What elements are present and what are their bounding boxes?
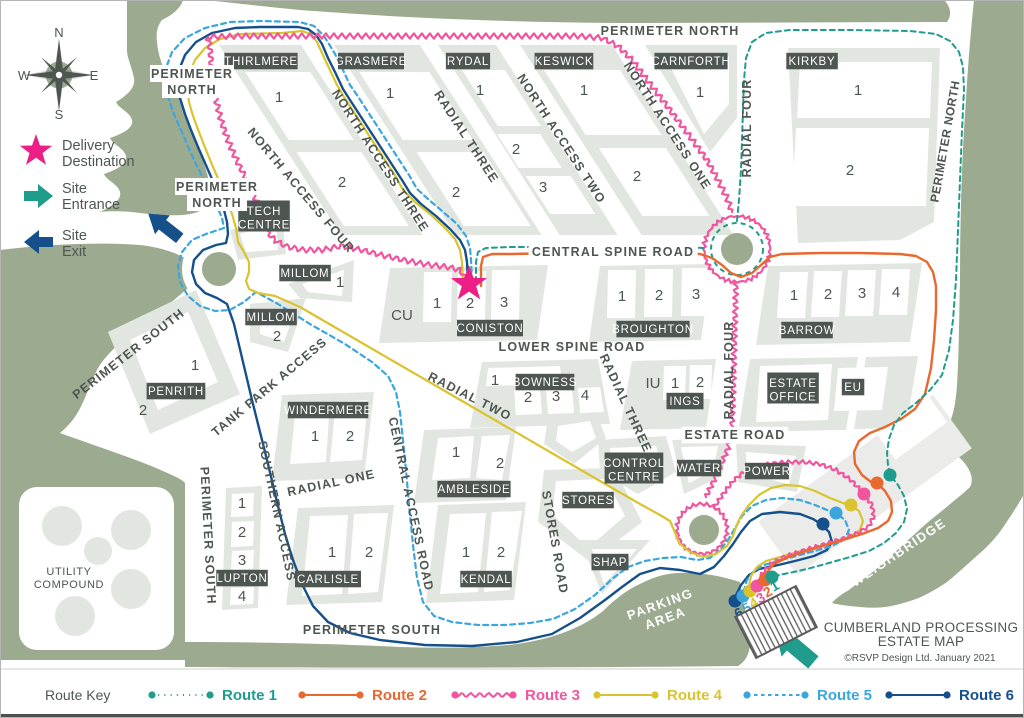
svg-text:2: 2 xyxy=(139,402,147,419)
svg-text:OFFICE: OFFICE xyxy=(770,392,817,404)
svg-text:NORTH: NORTH xyxy=(167,83,216,97)
svg-text:EU: EU xyxy=(844,382,862,394)
svg-text:3: 3 xyxy=(692,286,700,303)
svg-text:1: 1 xyxy=(491,372,499,389)
svg-text:4: 4 xyxy=(238,588,246,605)
svg-text:KESWICK: KESWICK xyxy=(535,56,594,68)
svg-text:2: 2 xyxy=(824,286,832,303)
svg-text:INGS: INGS xyxy=(669,396,700,408)
svg-text:RYDAL: RYDAL xyxy=(447,56,489,68)
svg-text:1: 1 xyxy=(580,82,588,99)
svg-text:2: 2 xyxy=(273,328,281,345)
svg-text:Route 2: Route 2 xyxy=(372,687,427,704)
svg-text:2: 2 xyxy=(346,428,354,445)
svg-text:ESTATE MAP: ESTATE MAP xyxy=(878,634,965,649)
svg-text:Exit: Exit xyxy=(62,244,86,260)
svg-text:PERIMETER: PERIMETER xyxy=(176,180,258,194)
svg-text:1: 1 xyxy=(336,274,344,291)
svg-text:3: 3 xyxy=(858,285,866,302)
svg-text:STORES: STORES xyxy=(562,495,614,507)
svg-text:PERIMETER: PERIMETER xyxy=(151,67,233,81)
svg-text:PERIMETER NORTH: PERIMETER NORTH xyxy=(601,24,740,38)
svg-text:2: 2 xyxy=(496,455,504,472)
svg-text:©RSVP Design Ltd. January 202: ©RSVP Design Ltd. January 2021 xyxy=(844,653,996,664)
svg-text:CARNFORTH: CARNFORTH xyxy=(651,56,730,68)
svg-text:1: 1 xyxy=(476,82,484,99)
svg-text:NORTH: NORTH xyxy=(192,196,241,210)
svg-text:1: 1 xyxy=(452,444,460,461)
svg-text:2: 2 xyxy=(497,544,505,561)
svg-text:IU: IU xyxy=(646,375,661,392)
svg-text:1: 1 xyxy=(238,495,246,512)
svg-text:1: 1 xyxy=(618,288,626,305)
svg-text:E: E xyxy=(90,68,99,83)
svg-text:1: 1 xyxy=(696,84,704,101)
svg-text:1: 1 xyxy=(386,85,394,102)
svg-text:ESTATE ROAD: ESTATE ROAD xyxy=(685,428,786,442)
svg-text:RADIAL FOUR: RADIAL FOUR xyxy=(740,78,754,177)
svg-text:AMBLESIDE: AMBLESIDE xyxy=(437,484,510,496)
svg-text:1: 1 xyxy=(462,544,470,561)
svg-text:CENTRE: CENTRE xyxy=(238,220,290,232)
svg-text:Delivery: Delivery xyxy=(62,138,115,154)
svg-text:2: 2 xyxy=(524,389,532,406)
svg-text:WINDERMERE: WINDERMERE xyxy=(284,405,372,417)
svg-text:1: 1 xyxy=(433,295,441,312)
svg-text:Route 5: Route 5 xyxy=(817,687,872,704)
svg-text:Route 6: Route 6 xyxy=(959,687,1014,704)
svg-text:Route Key: Route Key xyxy=(45,687,110,703)
svg-text:BOWNESS: BOWNESS xyxy=(513,377,577,389)
svg-text:COMPOUND: COMPOUND xyxy=(34,579,104,591)
svg-text:WATER: WATER xyxy=(677,463,721,475)
svg-text:3: 3 xyxy=(552,388,560,405)
svg-text:CONISTON: CONISTON xyxy=(457,323,524,335)
svg-text:THIRLMERE: THIRLMERE xyxy=(224,56,298,68)
svg-text:PENRITH: PENRITH xyxy=(148,386,204,398)
svg-text:ESTATE: ESTATE xyxy=(769,378,817,390)
svg-text:2: 2 xyxy=(512,141,520,158)
svg-text:BARROW: BARROW xyxy=(779,325,836,337)
svg-text:LOWER SPINE ROAD: LOWER SPINE ROAD xyxy=(499,340,646,354)
svg-text:1: 1 xyxy=(854,82,862,99)
svg-text:4: 4 xyxy=(892,284,900,301)
svg-text:2: 2 xyxy=(846,162,854,179)
svg-text:Route 1: Route 1 xyxy=(222,687,277,704)
svg-text:2: 2 xyxy=(238,524,246,541)
svg-text:1: 1 xyxy=(790,287,798,304)
svg-text:TECH: TECH xyxy=(247,206,282,218)
svg-text:1: 1 xyxy=(191,357,199,374)
svg-text:CONTROL: CONTROL xyxy=(603,458,665,470)
svg-text:GRASMERE: GRASMERE xyxy=(335,56,407,68)
svg-text:2: 2 xyxy=(655,287,663,304)
svg-text:KENDAL: KENDAL xyxy=(461,574,512,586)
svg-text:1: 1 xyxy=(671,375,679,392)
svg-text:2: 2 xyxy=(466,295,474,312)
svg-text:S: S xyxy=(55,107,64,122)
svg-text:SHAP: SHAP xyxy=(593,557,628,569)
svg-text:CENTRAL SPINE ROAD: CENTRAL SPINE ROAD xyxy=(532,245,694,259)
svg-text:KIRKBY: KIRKBY xyxy=(789,56,836,68)
svg-text:BROUGHTON: BROUGHTON xyxy=(612,324,694,336)
svg-text:3: 3 xyxy=(238,552,246,569)
svg-text:3: 3 xyxy=(539,179,547,196)
svg-text:W: W xyxy=(18,68,31,83)
svg-text:CENTRE: CENTRE xyxy=(608,472,660,484)
svg-text:POWER: POWER xyxy=(743,466,790,478)
svg-text:Site: Site xyxy=(62,181,87,197)
svg-text:1: 1 xyxy=(275,89,283,106)
svg-text:CUMBERLAND PROCESSING: CUMBERLAND PROCESSING xyxy=(824,620,1019,635)
svg-text:PERIMETER SOUTH: PERIMETER SOUTH xyxy=(303,623,441,637)
svg-text:Site: Site xyxy=(62,228,87,244)
svg-text:Route 4: Route 4 xyxy=(667,687,723,704)
svg-text:CARLISLE: CARLISLE xyxy=(297,574,359,586)
svg-text:1: 1 xyxy=(311,428,319,445)
svg-text:2: 2 xyxy=(365,544,373,561)
svg-text:2: 2 xyxy=(452,184,460,201)
svg-text:4: 4 xyxy=(581,387,589,404)
svg-text:UTILITY: UTILITY xyxy=(46,566,91,578)
svg-text:N: N xyxy=(54,25,63,40)
svg-text:Entrance: Entrance xyxy=(62,197,120,213)
svg-text:2: 2 xyxy=(338,174,346,191)
svg-text:LUPTON: LUPTON xyxy=(216,573,267,585)
svg-text:MILLOM: MILLOM xyxy=(281,268,330,280)
svg-text:Destination: Destination xyxy=(62,154,135,170)
svg-text:CU: CU xyxy=(391,307,413,324)
svg-text:1: 1 xyxy=(328,544,336,561)
svg-text:RADIAL FOUR: RADIAL FOUR xyxy=(722,320,736,419)
svg-text:2: 2 xyxy=(696,374,704,391)
svg-text:MILLOM: MILLOM xyxy=(247,312,296,324)
svg-text:2: 2 xyxy=(633,168,641,185)
svg-text:3: 3 xyxy=(500,294,508,311)
svg-text:Route 3: Route 3 xyxy=(525,687,580,704)
